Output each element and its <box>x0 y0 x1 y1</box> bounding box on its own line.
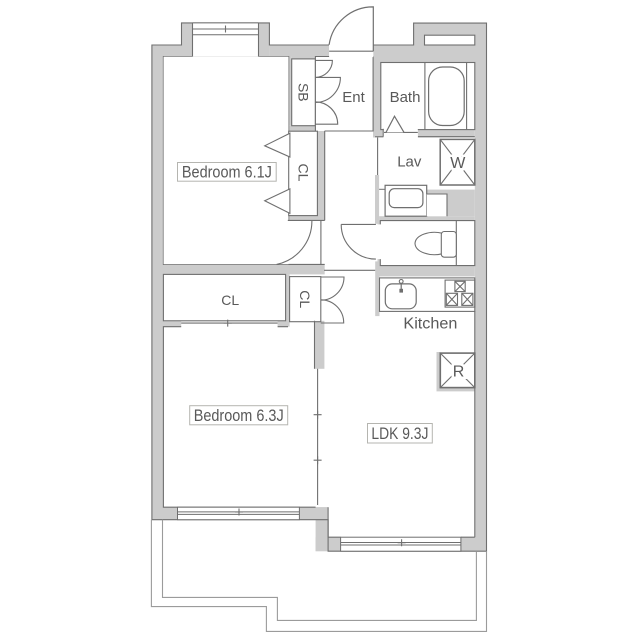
svg-text:R: R <box>453 363 465 380</box>
svg-text:CL: CL <box>297 290 313 308</box>
svg-text:LDK 9.3J: LDK 9.3J <box>371 424 428 443</box>
svg-text:W: W <box>450 155 466 172</box>
svg-text:CL: CL <box>221 292 239 308</box>
svg-text:Kitchen: Kitchen <box>403 315 457 332</box>
svg-text:Bath: Bath <box>390 89 421 106</box>
svg-text:Bedroom 6.3J: Bedroom 6.3J <box>194 406 284 425</box>
svg-text:Lav: Lav <box>397 153 422 170</box>
svg-text:Ent: Ent <box>342 89 365 106</box>
svg-text:Bedroom 6.1J: Bedroom 6.1J <box>182 163 272 182</box>
svg-text:CL: CL <box>296 164 312 182</box>
svg-text:SB: SB <box>296 83 312 102</box>
